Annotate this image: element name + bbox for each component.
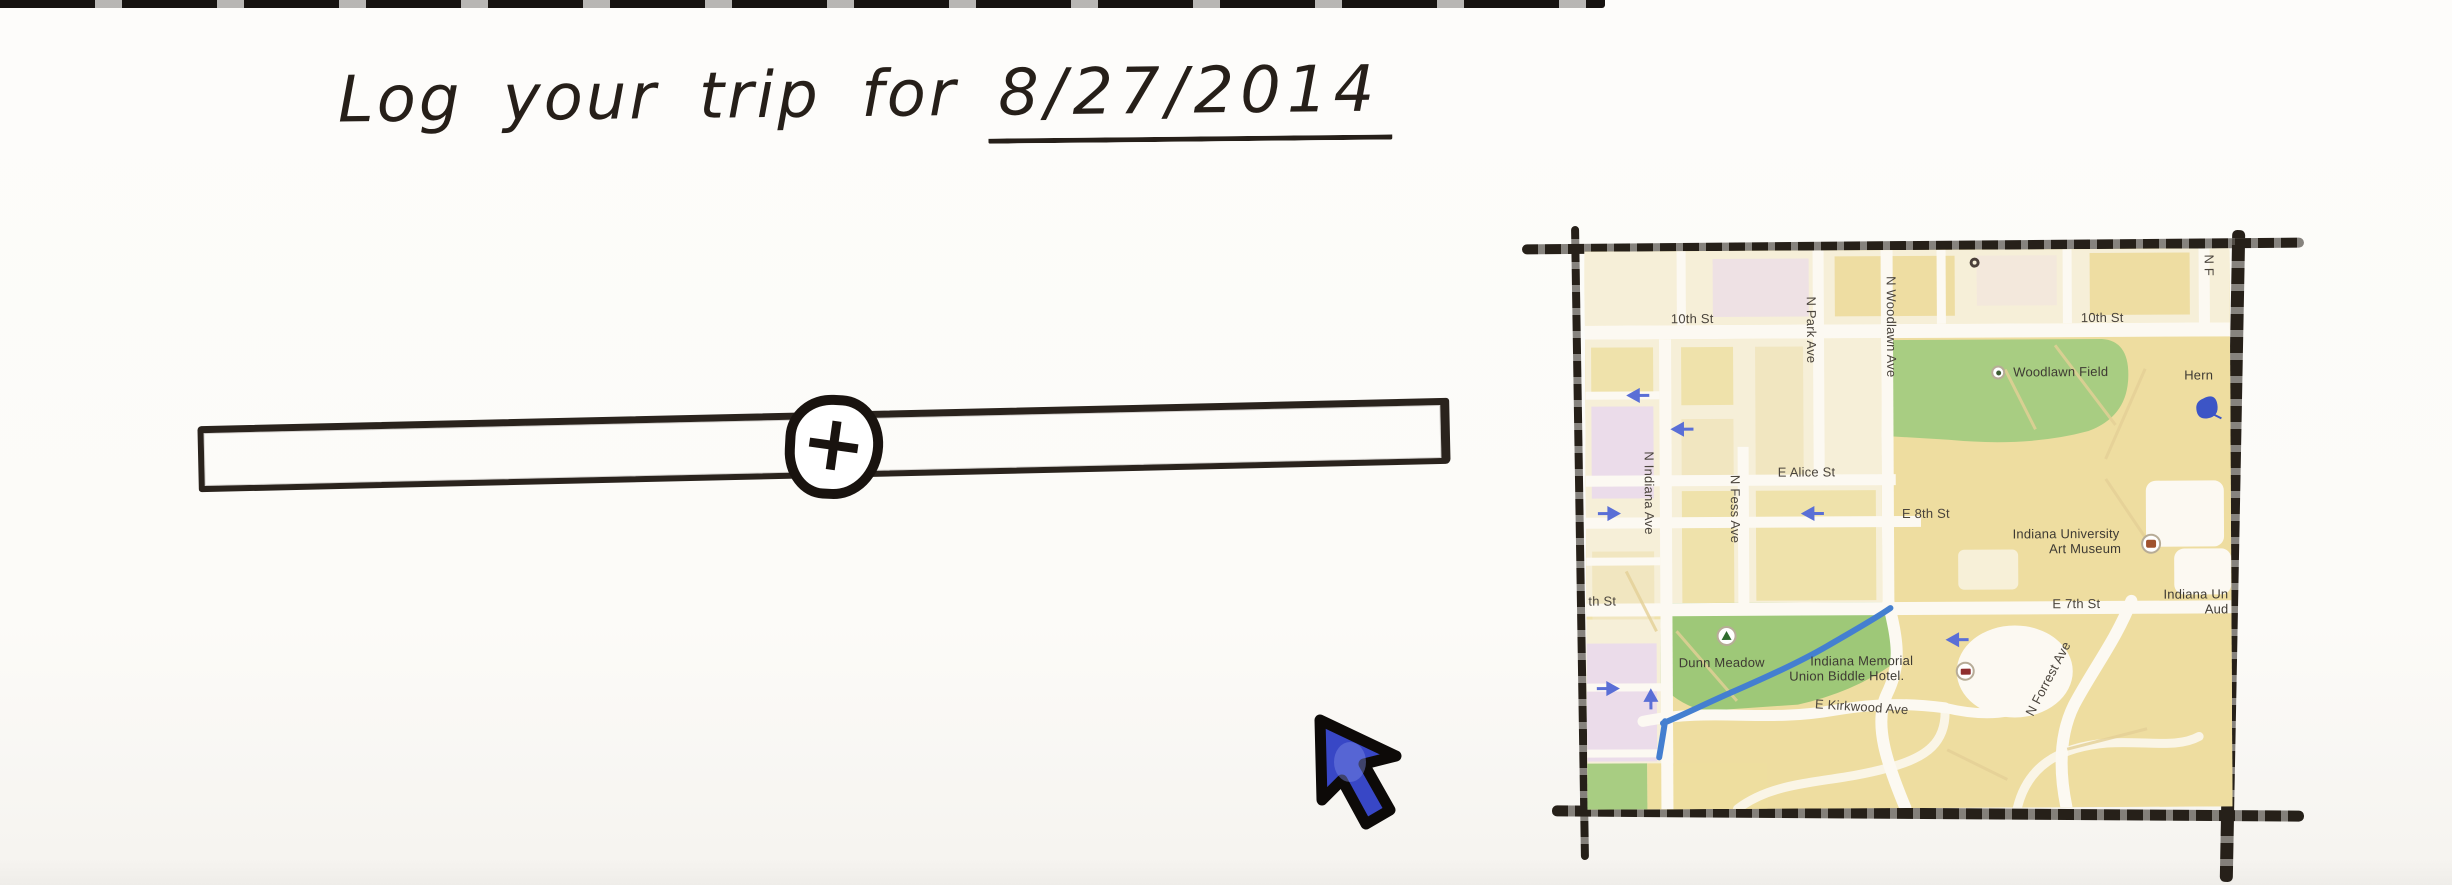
poi-label-art-museum: Indiana University Art Museum — [1986, 526, 2146, 557]
street-label-10th-left: 10th St — [1671, 311, 1714, 326]
plus-icon: + — [802, 439, 867, 448]
street-label-nf-edge: N F — [2202, 254, 2217, 276]
map-image[interactable]: 10th St 10th St N Park Ave N Woodlawn Av… — [1585, 248, 2233, 809]
street-label-woodlawn-ave: N Woodlawn Ave — [1884, 276, 1900, 377]
woodlawn-field-marker-icon — [1991, 365, 2005, 379]
transit-dot-icon — [1970, 258, 1980, 268]
art-museum-marker-icon — [2141, 534, 2161, 554]
street-label-fess-ave: N Fess Ave — [1728, 475, 1743, 543]
poi-label-auditorium-edge: Indiana Un Aud — [2144, 586, 2228, 616]
title-prefix: Log your trip for — [338, 57, 959, 137]
street-label-10th-right: 10th St — [2081, 310, 2124, 325]
poi-label-woodlawn-field: Woodlawn Field — [2013, 364, 2108, 379]
pointer-cursor-icon — [1306, 710, 1414, 832]
woodlawn-field-park — [1887, 339, 2129, 443]
street-label-7th-st: E 7th St — [2052, 596, 2100, 611]
dunn-meadow-tree-marker-icon — [1717, 626, 1737, 646]
street-label-8th-st: E 8th St — [1902, 506, 1950, 521]
street-label-indiana-ave: N Indiana Ave — [1642, 451, 1657, 534]
street-label-alice-st: E Alice St — [1778, 464, 1836, 479]
street-label-7th-st-edge: th St — [1588, 594, 1616, 609]
sketch-mockup-page: Log your trip for8/27/2014 + — [0, 0, 2452, 885]
hotel-marker-icon — [1956, 662, 1975, 681]
page-title: Log your trip for8/27/2014 — [338, 52, 1393, 150]
date-field[interactable]: 8/27/2014 — [988, 52, 1393, 143]
photo-top-edge — [0, 0, 1605, 8]
poi-label-herman-edge: Hern — [2184, 367, 2213, 382]
street-label-park-ave: N Park Ave — [1804, 296, 1819, 363]
add-trip-button[interactable]: + — [782, 393, 885, 502]
poi-label-imu-hotel: Indiana Memorial Union Biddle Hotel. — [1781, 653, 1943, 684]
